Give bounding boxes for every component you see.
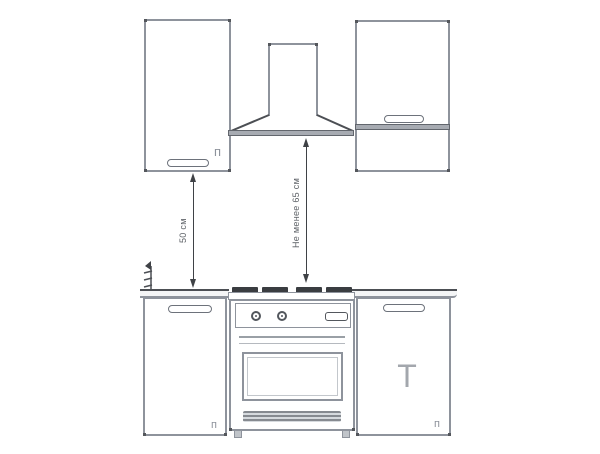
hood-canopy-base bbox=[228, 130, 354, 136]
dim-label-50cm: 50 см bbox=[178, 205, 188, 257]
break-mark bbox=[144, 261, 152, 289]
dim-arrowhead-up bbox=[190, 173, 196, 182]
oven-door-line bbox=[239, 336, 345, 338]
timer-display bbox=[325, 312, 348, 321]
corner-dot bbox=[356, 433, 359, 436]
hinge-mark: п bbox=[434, 419, 440, 430]
kitchen-diagram: п 50 см Не менее 65 см bbox=[0, 0, 600, 454]
cabinet-handle bbox=[383, 304, 425, 312]
dim-line-50cm bbox=[193, 180, 194, 282]
burner-knob bbox=[277, 311, 287, 321]
left-base-cabinet: п bbox=[143, 298, 227, 436]
hinge-mark: п bbox=[211, 420, 217, 431]
tee-mark: T bbox=[389, 359, 425, 395]
oven-window bbox=[242, 352, 343, 401]
dim-arrowhead-up bbox=[303, 138, 309, 147]
right-countertop bbox=[352, 289, 457, 298]
dim-label-65cm: Не менее 65 см bbox=[291, 167, 301, 259]
hood-left-slant bbox=[231, 115, 269, 131]
stove-leg bbox=[342, 430, 350, 438]
dim-arrowhead-down bbox=[190, 279, 196, 288]
corner-dot bbox=[143, 433, 146, 436]
burner-knob bbox=[251, 311, 261, 321]
cabinet-handle bbox=[168, 305, 212, 313]
stove-body bbox=[229, 299, 355, 431]
corner-dot bbox=[229, 428, 232, 431]
knob-center bbox=[255, 315, 257, 317]
control-panel bbox=[235, 303, 351, 328]
vent-grille bbox=[243, 411, 341, 422]
corner-dot bbox=[224, 433, 227, 436]
dim-arrowhead-down bbox=[303, 274, 309, 283]
hood-right-slant bbox=[317, 115, 353, 131]
knob-center bbox=[281, 315, 283, 317]
oven-door-line bbox=[239, 343, 345, 344]
corner-dot bbox=[352, 428, 355, 431]
left-countertop bbox=[140, 289, 229, 298]
right-base-cabinet: T п bbox=[356, 298, 451, 436]
corner-dot bbox=[448, 433, 451, 436]
dim-line-65cm bbox=[306, 145, 307, 277]
oven-window-inner bbox=[247, 357, 338, 396]
stove-leg bbox=[234, 430, 242, 438]
